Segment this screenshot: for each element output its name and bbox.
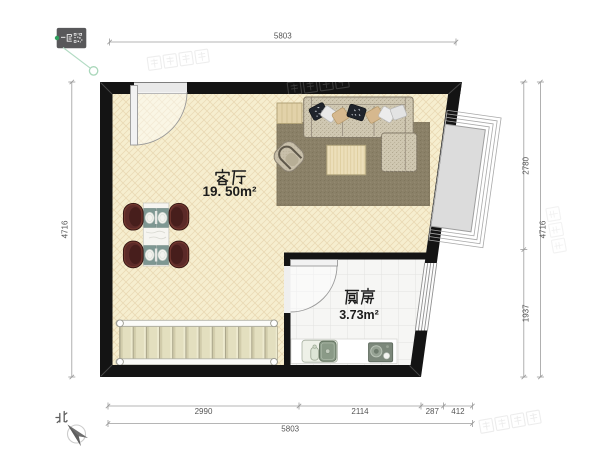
svg-text:2114: 2114 — [351, 407, 369, 416]
svg-text:287: 287 — [426, 407, 440, 416]
svg-text:2990: 2990 — [195, 407, 213, 416]
svg-text:3.73m²: 3.73m² — [339, 308, 379, 322]
svg-text:4716: 4716 — [539, 220, 548, 238]
svg-text:5803: 5803 — [274, 32, 292, 41]
svg-text:19. 50m²: 19. 50m² — [202, 184, 257, 199]
svg-text:4716: 4716 — [60, 220, 69, 238]
svg-text:1937: 1937 — [522, 304, 531, 322]
svg-text:2780: 2780 — [522, 156, 531, 174]
svg-text:412: 412 — [451, 407, 465, 416]
svg-text:5803: 5803 — [281, 425, 299, 434]
